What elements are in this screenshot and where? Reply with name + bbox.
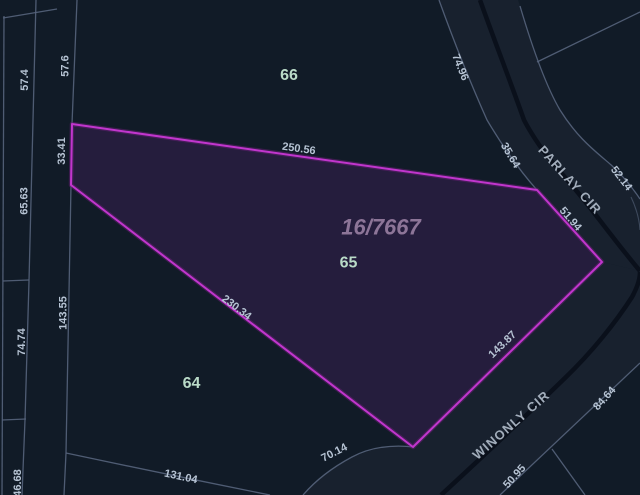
svg-text:57.6: 57.6 <box>60 55 72 76</box>
svg-text:143.55: 143.55 <box>58 296 70 330</box>
svg-text:33.41: 33.41 <box>56 137 68 165</box>
svg-text:16/7667: 16/7667 <box>341 215 422 240</box>
svg-text:46.68: 46.68 <box>12 469 24 495</box>
svg-text:74.74: 74.74 <box>16 327 28 355</box>
svg-text:57.4: 57.4 <box>19 68 31 90</box>
svg-text:64: 64 <box>183 375 201 392</box>
svg-text:66: 66 <box>280 67 298 84</box>
svg-text:65: 65 <box>340 255 358 272</box>
svg-text:65.63: 65.63 <box>19 187 31 215</box>
